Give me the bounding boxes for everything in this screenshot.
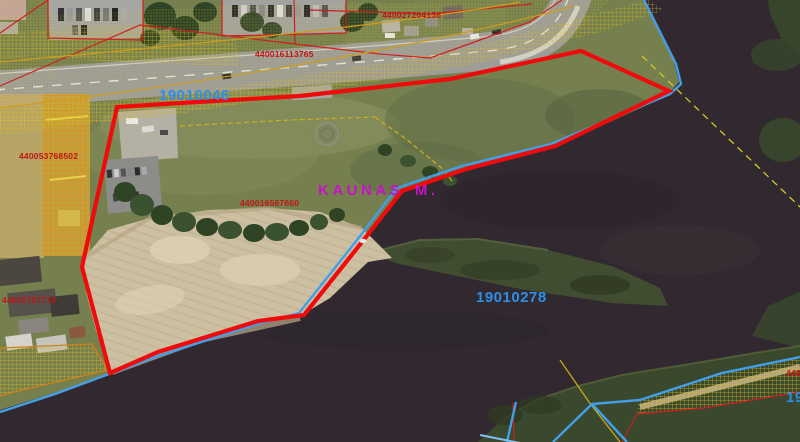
cadastral-block-label: 19010278 [476, 290, 547, 305]
map-viewport[interactable]: 440027204136 440016113765 440053768502 4… [0, 0, 800, 442]
cadastral-block-label-clipped: 19 [786, 390, 800, 405]
parcel-number-label: 44005757710 [2, 296, 56, 305]
municipality-label: KAUNAS M. [318, 183, 439, 198]
round-earthwork [316, 123, 338, 145]
cadastral-block-label: 19010046 [159, 88, 230, 103]
parcel-number-label-clipped: 4400 [786, 369, 800, 378]
boat [360, 239, 367, 243]
parcel-number-label: 440053768502 [19, 152, 78, 161]
parcel-number-label: 440027204136 [382, 11, 441, 20]
parcel-number-label: 440016113765 [255, 50, 314, 59]
aerial-basemap [0, 0, 800, 442]
parcel-number-label: 440016567660 [240, 199, 299, 208]
